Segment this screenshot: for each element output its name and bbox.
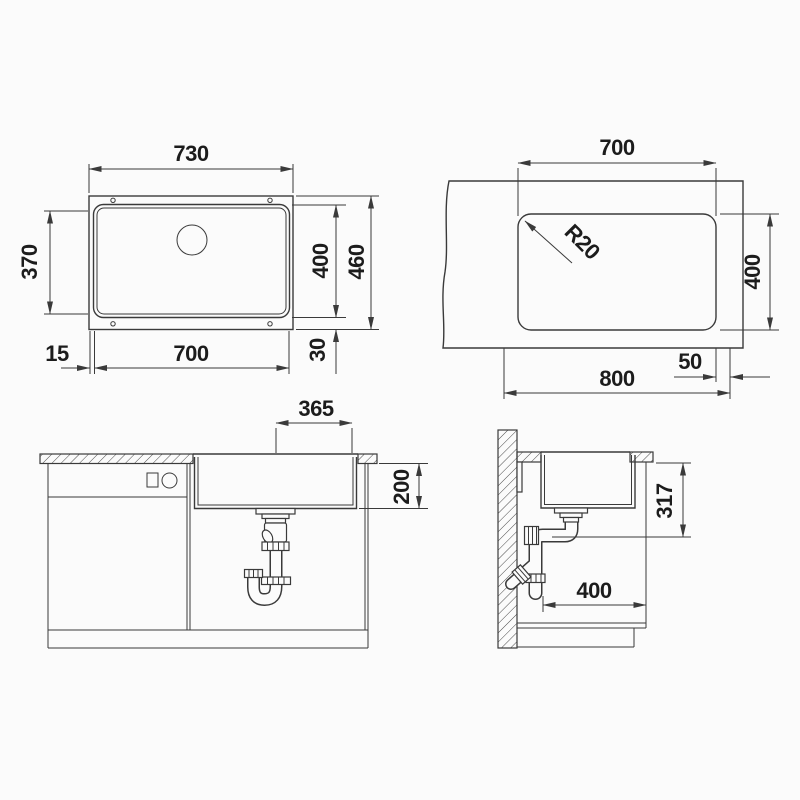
- dim-label-460: 460: [344, 244, 369, 279]
- dim-left-depth: 370: [17, 211, 88, 314]
- union-nut: [262, 577, 291, 585]
- dim-drain-offset: 365: [276, 396, 352, 453]
- sink-outer-rim: [89, 196, 293, 330]
- drain-hole: [177, 225, 207, 255]
- dim-label-30: 30: [305, 338, 330, 362]
- appliance-knob-icon: [162, 473, 177, 488]
- mounting-hole: [111, 198, 115, 202]
- countertop-hatch-right: [358, 454, 377, 464]
- dim-label-365: 365: [298, 396, 333, 421]
- union-nut: [262, 542, 289, 551]
- sink-bowl-side: [541, 455, 635, 508]
- wall-batten: [517, 462, 522, 492]
- mounting-hole: [268, 198, 272, 202]
- dim-label-800: 800: [599, 366, 634, 391]
- drain-trap-front: [245, 509, 296, 600]
- appliance-control-icon: [147, 473, 158, 487]
- drain-flange: [256, 509, 295, 515]
- sink-top-view: 730 370 400 460 30 15: [17, 141, 379, 374]
- dim-label-400-side: 400: [576, 578, 611, 603]
- dim-edge-distance: 50: [674, 348, 770, 399]
- cabinet-front: [48, 464, 368, 649]
- dim-label-700-cutout: 700: [599, 135, 634, 160]
- dim-bowl-front-to-back: 400: [543, 578, 646, 612]
- dim-bowl-depth: 400: [292, 205, 346, 318]
- countertop-hatch-back: [517, 452, 541, 462]
- dim-label-15: 15: [45, 341, 69, 366]
- dim-label-50: 50: [678, 349, 702, 374]
- drain-flange-side: [555, 508, 588, 513]
- drawing-canvas: 730 370 400 460 30 15: [0, 0, 800, 800]
- countertop-hatch-left: [40, 454, 193, 464]
- trap-outlet-cap: [245, 570, 263, 578]
- dim-rim-offset: 15: [45, 331, 94, 374]
- dim-bottom-offset: 30: [305, 330, 336, 375]
- sink-bowl-front: [195, 457, 357, 509]
- dim-label-370: 370: [17, 244, 42, 279]
- dim-cutout-width: 700: [518, 135, 716, 216]
- dim-bowl-inner-depth: 200: [359, 464, 428, 509]
- mounting-hole: [111, 322, 115, 326]
- dim-label-400: 400: [308, 243, 333, 278]
- wall-section: [498, 430, 517, 648]
- cutout-outline: [518, 214, 716, 330]
- dim-label-400-cutout: 400: [740, 254, 765, 289]
- dim-overall-width: 730: [89, 141, 293, 193]
- technical-drawing-page: 730 370 400 460 30 15: [0, 0, 800, 800]
- front-elevation-view: 365 200: [40, 396, 428, 648]
- side-section-view: 317 400: [498, 430, 691, 648]
- dim-label-200: 200: [389, 469, 414, 504]
- bowl-outline: [94, 205, 290, 318]
- mounting-hole: [268, 322, 272, 326]
- dim-bowl-width: 700: [95, 331, 290, 374]
- dim-label-700: 700: [173, 341, 208, 366]
- countertop-hatch-front: [630, 452, 653, 462]
- dim-label-730: 730: [173, 141, 208, 166]
- dim-label-317: 317: [652, 483, 677, 518]
- countertop-outline: [443, 181, 743, 348]
- bowl-inner-edge: [97, 208, 286, 314]
- countertop-cutout-view: 700 R20 400 50 800: [443, 135, 779, 399]
- dim-corner-radius: R20: [525, 219, 605, 264]
- union-nut: [525, 527, 539, 545]
- dim-cutout-depth: 400: [720, 214, 779, 330]
